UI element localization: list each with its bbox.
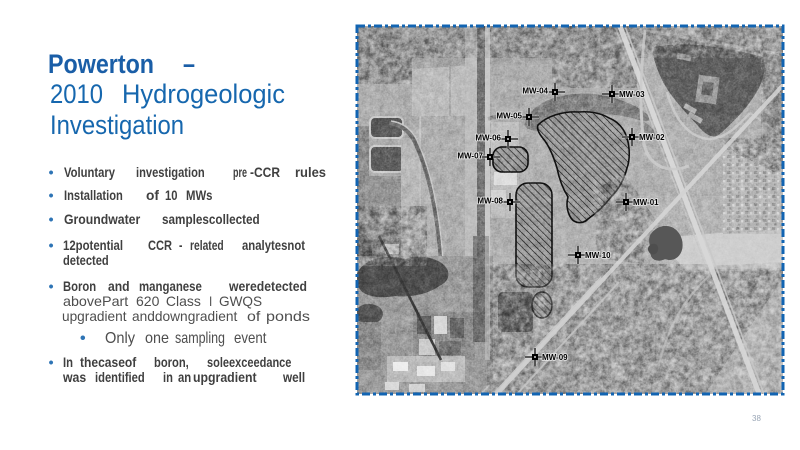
svg-text:MW-05: MW-05 (496, 112, 522, 121)
svg-text:MW-07: MW-07 (457, 152, 483, 161)
svg-text:MW-09: MW-09 (542, 353, 568, 362)
svg-text:MW-04: MW-04 (522, 87, 548, 96)
svg-text:MW-08: MW-08 (477, 197, 503, 206)
svg-text:MW-03: MW-03 (619, 90, 645, 99)
svg-text:MW-06: MW-06 (475, 134, 501, 143)
svg-text:MW-01: MW-01 (633, 198, 659, 207)
svg-text:MW-10: MW-10 (585, 251, 611, 260)
svg-text:MW-02: MW-02 (639, 133, 665, 142)
